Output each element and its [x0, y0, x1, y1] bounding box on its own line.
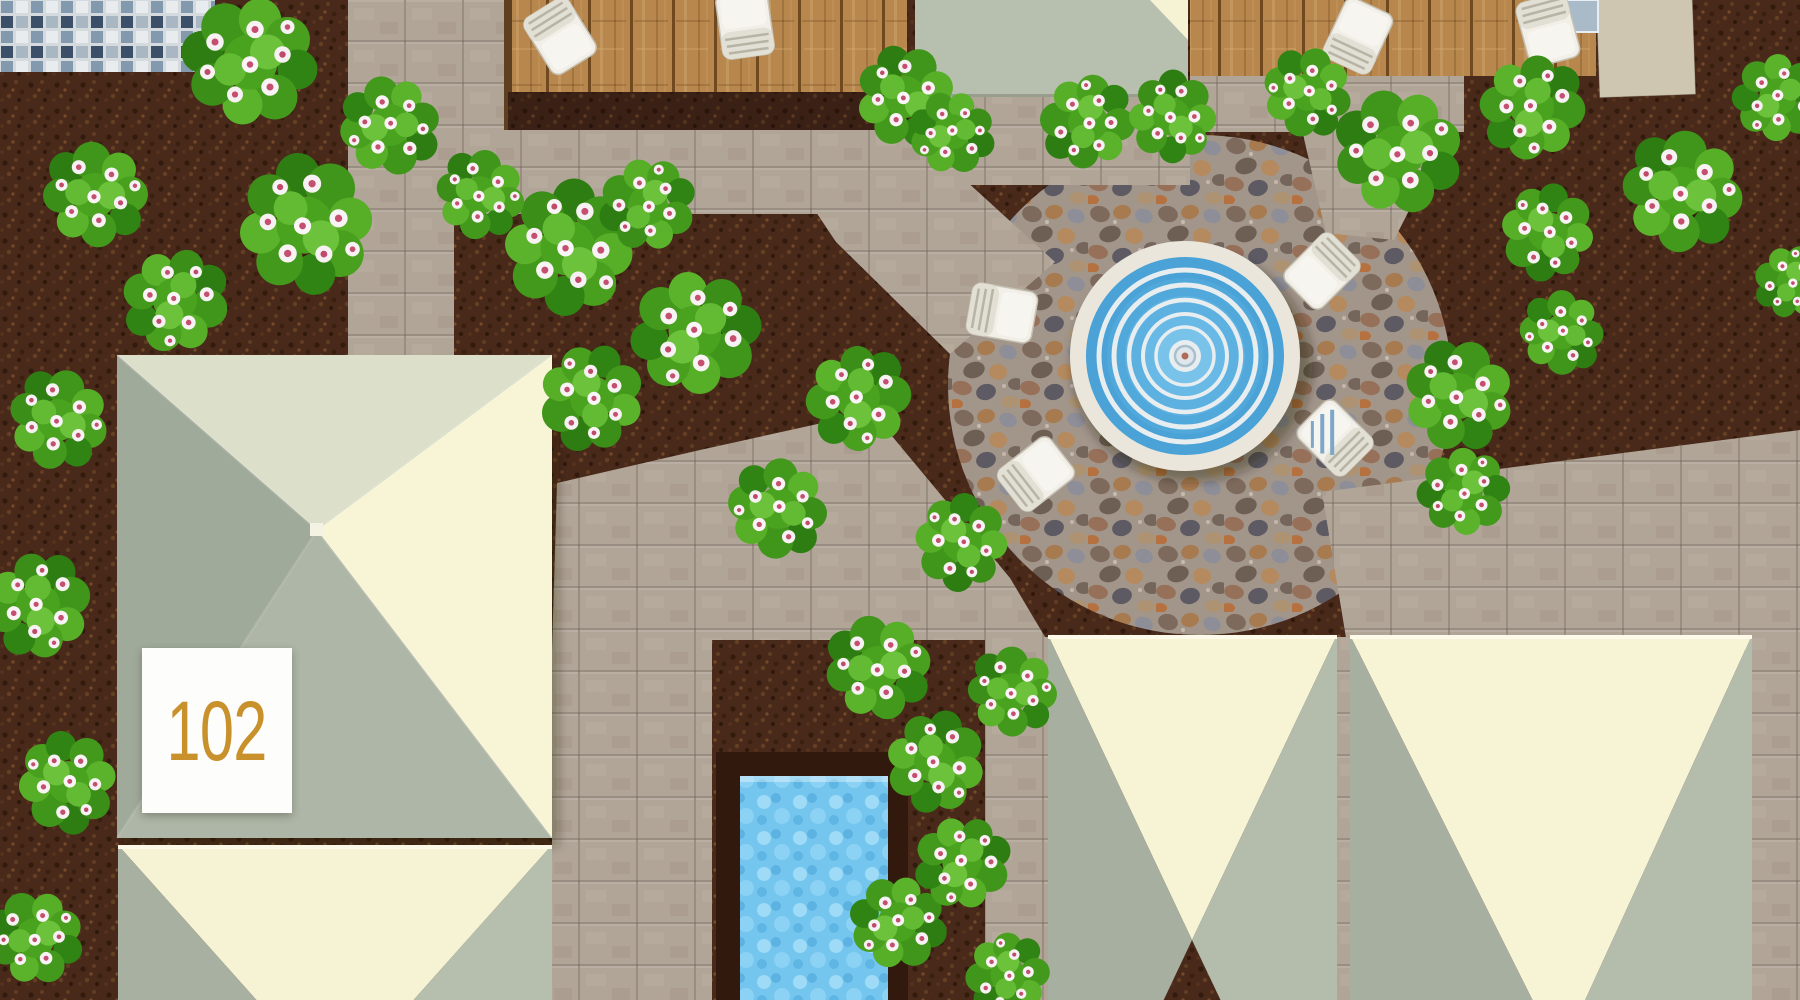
roof-apex — [310, 523, 323, 536]
building-bottom-right-roof — [1350, 635, 1752, 1000]
lounge-chair — [965, 282, 1039, 345]
lounge-chair — [715, 0, 776, 60]
unit-marker-102[interactable]: 102 — [142, 648, 292, 813]
site-plan: 102 — [0, 0, 1800, 1000]
unit-label: 102 — [167, 689, 267, 773]
building-bottom-left-roof — [118, 845, 552, 1000]
site-plan-render — [0, 0, 1800, 1000]
mosaic-walkway — [0, 0, 215, 72]
